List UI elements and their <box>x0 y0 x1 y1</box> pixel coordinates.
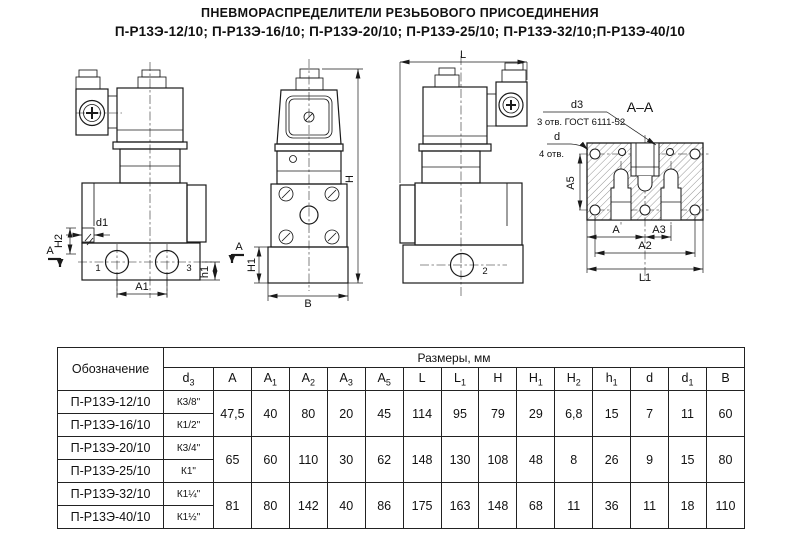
dim-label-a2: A2 <box>638 240 651 252</box>
title-block: ПНЕВМОРАСПРЕДЕЛИТЕЛИ РЕЗЬБОВОГО ПРИСОЕДИ… <box>0 6 800 39</box>
column-header: A5 <box>365 368 403 391</box>
value-cell: 30 <box>327 437 365 483</box>
model-name-cell: П-Р13Э-12/10 <box>58 391 164 414</box>
table-row: П-Р13Э-20/10 К3/4" 65 60 110 30 62 148 1… <box>58 437 745 460</box>
dim-label-h: H <box>344 175 356 183</box>
port-number-1: 1 <box>95 263 100 274</box>
value-cell: 110 <box>706 483 744 529</box>
page-title: ПНЕВМОРАСПРЕДЕЛИТЕЛИ РЕЗЬБОВОГО ПРИСОЕДИ… <box>0 6 800 20</box>
value-cell: 11 <box>631 483 669 529</box>
value-cell: 80 <box>706 437 744 483</box>
value-cell: 11 <box>555 483 593 529</box>
cable-gland-icon <box>79 70 97 77</box>
dim-label-d1: d1 <box>96 217 108 229</box>
value-cell: 20 <box>327 391 365 437</box>
value-cell: 148 <box>479 483 517 529</box>
port-number-3: 3 <box>186 263 191 274</box>
cable-gland-icon <box>505 63 523 70</box>
cable-gland-icon <box>300 69 319 78</box>
dim-label-l: L <box>460 49 466 61</box>
model-name-cell: П-Р13Э-16/10 <box>58 414 164 437</box>
value-cell: 60 <box>706 391 744 437</box>
column-header: d1 <box>669 368 707 391</box>
leader-label-d: d <box>554 131 560 143</box>
value-cell: 114 <box>403 391 441 437</box>
value-cell: 60 <box>251 437 289 483</box>
solenoid-coil-icon <box>423 87 487 144</box>
leader-note-3holes: 3 отв. ГОСТ 6111-52 <box>537 117 625 128</box>
value-cell: 36 <box>593 483 631 529</box>
side-port-icon <box>82 228 94 242</box>
designation-header: Обозначение <box>58 348 164 391</box>
value-cell: 62 <box>365 437 403 483</box>
dim-label-h2: H2 <box>53 234 65 248</box>
column-header: A <box>214 368 252 391</box>
value-cell: 6,8 <box>555 391 593 437</box>
dim-label-b: B <box>304 298 311 310</box>
dim-label-a3: A3 <box>652 224 665 236</box>
value-cell: 108 <box>479 437 517 483</box>
model-name-cell: П-Р13Э-20/10 <box>58 437 164 460</box>
model-name-cell: П-Р13Э-40/10 <box>58 506 164 529</box>
center-port-bottom-icon <box>638 176 652 191</box>
value-cell: 8 <box>555 437 593 483</box>
sizes-header: Размеры, мм <box>164 348 745 368</box>
mounting-hole-icon <box>690 149 700 159</box>
mounting-hole-icon <box>590 149 600 159</box>
dimensions-table: Обозначение Размеры, мм d3 A A1 A2 A3 A5… <box>57 347 745 529</box>
mounting-hole-icon <box>690 205 700 215</box>
value-cell: 80 <box>289 391 327 437</box>
back-view-drawing: L 2 <box>395 48 535 308</box>
column-header: L <box>403 368 441 391</box>
d3-cell: К3/4" <box>164 437 214 460</box>
value-cell: 40 <box>251 391 289 437</box>
pilot-hole-icon <box>640 205 650 215</box>
drawing-sheet: ПНЕВМОРАСПРЕДЕЛИТЕЛИ РЕЗЬБОВОГО ПРИСОЕДИ… <box>0 0 800 541</box>
value-cell: 163 <box>441 483 479 529</box>
column-header: h1 <box>593 368 631 391</box>
column-header: H1 <box>517 368 555 391</box>
value-cell: 40 <box>327 483 365 529</box>
dim-label-l1: L1 <box>639 272 651 284</box>
column-header: H <box>479 368 517 391</box>
column-header: A2 <box>289 368 327 391</box>
table-row: П-Р13Э-32/10 К1¼" 81 80 142 40 86 175 16… <box>58 483 745 506</box>
coil-cap-icon <box>142 70 160 77</box>
value-cell: 26 <box>593 437 631 483</box>
leader-label-d3: d3 <box>571 99 583 111</box>
threaded-boss-icon <box>661 169 681 220</box>
value-cell: 45 <box>365 391 403 437</box>
value-cell: 47,5 <box>214 391 252 437</box>
center-port-icon <box>631 143 659 176</box>
dim-label-a: A <box>612 224 620 236</box>
model-list-title: П-Р13Э-12/10; П-Р13Э-16/10; П-Р13Э-20/10… <box>0 24 800 39</box>
d3-cell: К1" <box>164 460 214 483</box>
valve-base-icon <box>82 243 200 280</box>
value-cell: 15 <box>669 437 707 483</box>
value-cell: 80 <box>251 483 289 529</box>
value-cell: 142 <box>289 483 327 529</box>
valve-base-icon <box>268 247 348 283</box>
section-letter-left: A <box>46 245 54 257</box>
side-view-drawing: H H1 B <box>250 55 380 310</box>
section-title: А–А <box>627 99 654 115</box>
value-cell: 9 <box>631 437 669 483</box>
column-header: B <box>706 368 744 391</box>
model-name-cell: П-Р13Э-32/10 <box>58 483 164 506</box>
value-cell: 130 <box>441 437 479 483</box>
d3-cell: К1¼" <box>164 483 214 506</box>
coil-cap-icon <box>439 68 455 75</box>
dim-label-h1: H1 <box>246 258 258 272</box>
valve-body-icon <box>415 183 522 245</box>
column-header: d3 <box>164 368 214 391</box>
dim-label-a5: A5 <box>565 176 577 189</box>
value-cell: 7 <box>631 391 669 437</box>
value-cell: 79 <box>479 391 517 437</box>
dim-label-h1-small: h1 <box>199 266 211 278</box>
value-cell: 110 <box>289 437 327 483</box>
pilot-hole-icon <box>667 149 674 156</box>
threaded-boss-icon <box>611 169 631 220</box>
value-cell: 148 <box>403 437 441 483</box>
section-view-drawing: А–А d3 3 отв. ГОСТ 6111-52 d <box>535 95 760 295</box>
d3-cell: К3/8" <box>164 391 214 414</box>
table-row: П-Р13Э-12/10 К3/8" 47,5 40 80 20 45 114 … <box>58 391 745 414</box>
section-letter-right: A <box>235 241 243 253</box>
dim-label-a1: A1 <box>135 281 148 293</box>
port-number-2: 2 <box>482 266 487 277</box>
valve-body-icon <box>82 183 187 243</box>
column-header: d <box>631 368 669 391</box>
model-name-cell: П-Р13Э-25/10 <box>58 460 164 483</box>
value-cell: 11 <box>669 391 707 437</box>
value-cell: 86 <box>365 483 403 529</box>
column-header: H2 <box>555 368 593 391</box>
value-cell: 81 <box>214 483 252 529</box>
d3-cell: К1½" <box>164 506 214 529</box>
value-cell: 15 <box>593 391 631 437</box>
mounting-hole-icon <box>590 205 600 215</box>
value-cell: 68 <box>517 483 555 529</box>
pilot-hole-icon <box>619 149 626 156</box>
value-cell: 18 <box>669 483 707 529</box>
column-header: A3 <box>327 368 365 391</box>
value-cell: 175 <box>403 483 441 529</box>
value-cell: 29 <box>517 391 555 437</box>
d3-cell: К1/2" <box>164 414 214 437</box>
column-header: A1 <box>251 368 289 391</box>
column-header: L1 <box>441 368 479 391</box>
front-view-drawing: d1 H2 A A A1 h1 1 3 <box>40 58 265 308</box>
value-cell: 48 <box>517 437 555 483</box>
leader-note-4holes: 4 отв. <box>539 149 564 160</box>
value-cell: 95 <box>441 391 479 437</box>
value-cell: 65 <box>214 437 252 483</box>
valve-base-icon <box>403 245 523 283</box>
